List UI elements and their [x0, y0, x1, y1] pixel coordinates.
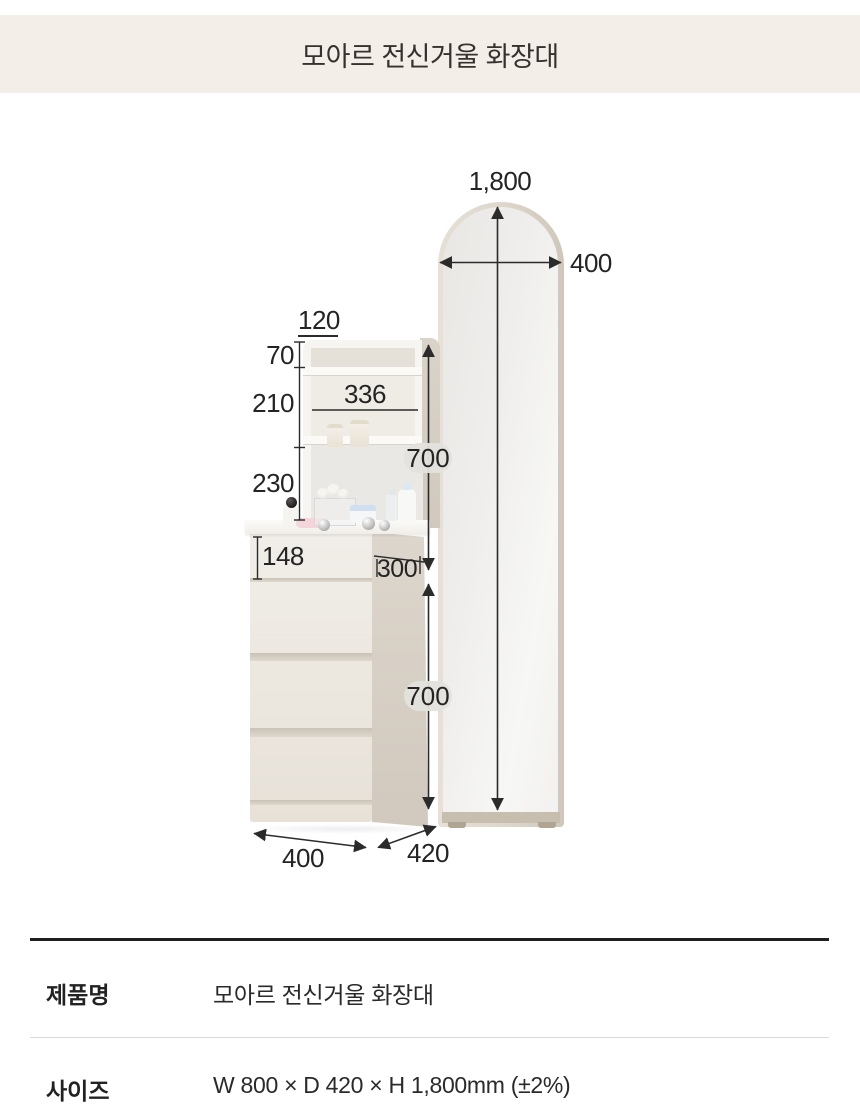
- table-top-rule: [30, 938, 829, 941]
- header-band: 모아르 전신거울 화장대: [0, 15, 860, 93]
- dim-mirror-width: 400: [570, 249, 612, 277]
- spec-row-size-label: 사이즈: [46, 1072, 109, 1106]
- mirror-foot-right: [538, 822, 556, 828]
- chrome-sphere-2: [362, 517, 375, 530]
- spec-row-product-label: 제품명: [46, 976, 109, 1010]
- dim-inner-width: 336: [335, 380, 395, 408]
- perfume-ball-cap: [286, 497, 297, 508]
- drawer-groove-3: [250, 728, 372, 737]
- dim-top-shelf-depth: 120: [298, 306, 338, 337]
- hutch-side-panel: [420, 338, 440, 528]
- chrome-sphere-1: [318, 519, 330, 531]
- dropper-bottle: [386, 494, 397, 521]
- mirror-foot-left: [448, 822, 466, 828]
- dropper-cap: [389, 489, 395, 495]
- chrome-sphere-3: [379, 520, 390, 531]
- dim-chest-width: 400: [273, 844, 333, 872]
- pump-bottle: [398, 489, 416, 523]
- dim-upper-section: 70: [250, 341, 294, 369]
- dim-lower-section: 230: [242, 469, 294, 497]
- page-title: 모아르 전신거울 화장대: [301, 35, 558, 74]
- dim-upper-unit-depth: 300: [372, 555, 422, 583]
- dim-chest-height: 700: [404, 681, 452, 711]
- chest-front: [250, 532, 372, 822]
- table-row-divider: [30, 1037, 829, 1038]
- cream-jar-small: [327, 424, 343, 447]
- hutch-shelf-upper: [303, 367, 422, 376]
- dim-depth: 420: [398, 839, 458, 867]
- drawer-groove-2: [250, 653, 372, 661]
- floor-shadow: [248, 824, 438, 834]
- spec-row-size-value: W 800 × D 420 × H 1,800mm (±2%): [213, 1072, 570, 1099]
- hutch-top-recess: [311, 348, 415, 368]
- mirror-glass: [443, 207, 558, 815]
- pump-bottle-cap: [403, 483, 411, 490]
- dim-middle-section: 210: [242, 389, 294, 417]
- drawer-groove-1: [250, 578, 372, 582]
- cream-jar-large: [350, 420, 369, 447]
- dim-total-height: 1,800: [450, 167, 550, 195]
- plinth-groove: [250, 800, 372, 805]
- cotton-puff-3: [338, 489, 349, 499]
- dim-top-drawer-height: 148: [262, 542, 304, 570]
- spec-row-product-value: 모아르 전신거울 화장대: [213, 976, 434, 1010]
- dim-upper-height: 700: [404, 443, 452, 473]
- product-detail-image: 모아르 전신거울 화장대: [0, 0, 860, 1107]
